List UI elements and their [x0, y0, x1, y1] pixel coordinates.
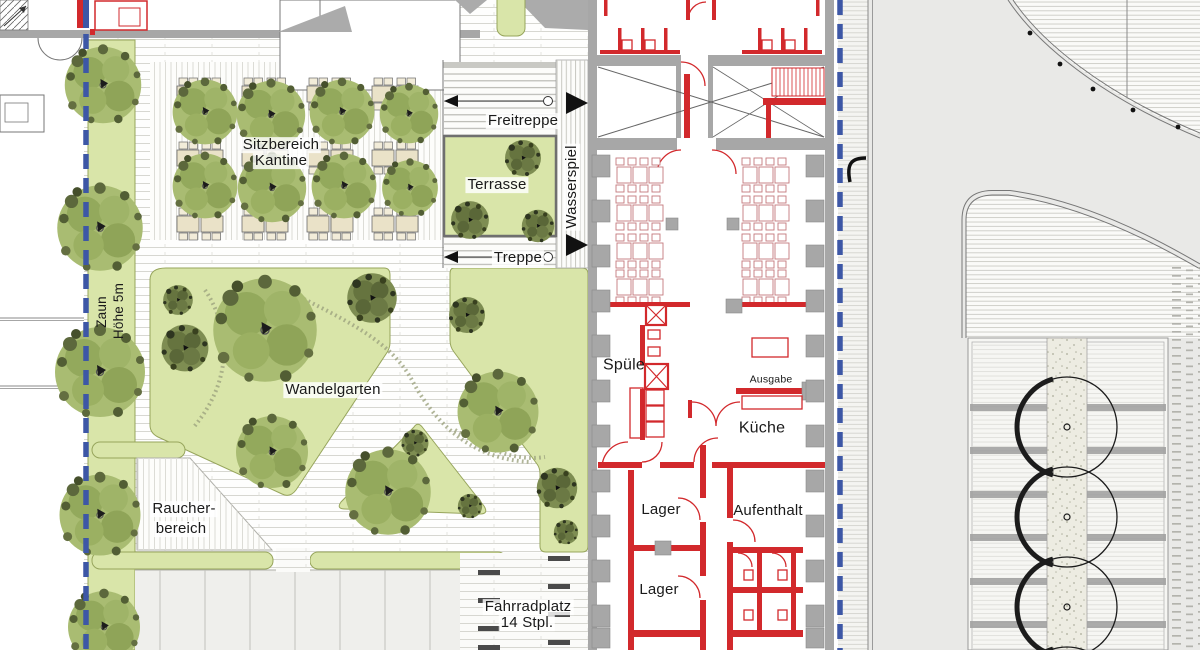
smoking-area-label-1: Raucher- [150, 501, 217, 517]
bike-parking-label-2: 14 Stpl. [499, 615, 555, 631]
wc-block [597, 0, 825, 62]
seating-area-label-2: Kantine [253, 153, 309, 169]
car-parking [968, 338, 1168, 650]
paving-strip [1172, 265, 1200, 650]
smoking-area-label-2: bereich [154, 521, 209, 537]
dining-hall [616, 158, 789, 304]
storage2-label: Lager [639, 582, 678, 598]
kantine-building [588, 0, 834, 650]
freitreppe-label: Freitreppe [486, 113, 560, 129]
toilet-icon [744, 570, 753, 580]
seating-area-label-1: Sitzbereich [241, 137, 321, 153]
bike-parking-label-1: Fahrradplatz [483, 599, 574, 615]
water-feature-label: Wasserspiel [564, 143, 580, 230]
serving-label: Ausgabe [750, 374, 793, 385]
sink-room-label: Spüle [603, 358, 645, 375]
storage1-label: Lager [641, 502, 680, 518]
fence-label-1: Zaun [95, 296, 109, 328]
lounge-label: Aufenthalt [733, 503, 803, 519]
street-area [838, 0, 1200, 650]
kitchen-label: Küche [739, 421, 785, 438]
wall-pillars [592, 155, 824, 648]
treppe-label: Treppe [492, 250, 544, 266]
terrace-label: Terrasse [465, 177, 528, 193]
site-plan-drawing [0, 0, 1200, 650]
fence-label-2: Höhe 5m [112, 283, 126, 339]
garden-label: Wandelgarten [283, 382, 382, 398]
site-plan: Sitzbereich Kantine Freitreppe Terrasse … [0, 0, 1200, 650]
storage-lounge-zone [628, 445, 803, 650]
